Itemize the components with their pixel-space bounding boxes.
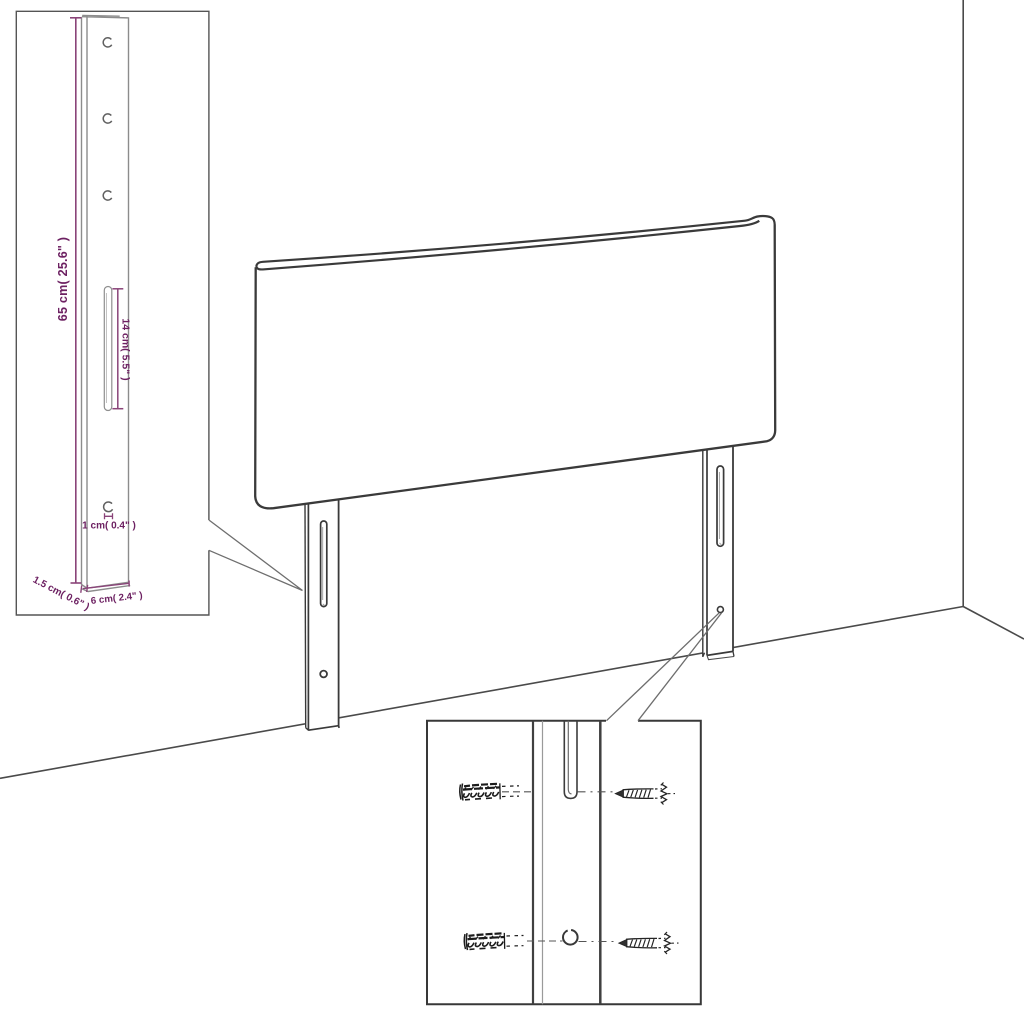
svg-text:65 cm( 25.6" ): 65 cm( 25.6" ) [56, 237, 70, 321]
svg-text:14 cm( 5.5" ): 14 cm( 5.5" ) [119, 318, 131, 380]
svg-text:1 cm( 0.4" ): 1 cm( 0.4" ) [82, 521, 136, 532]
